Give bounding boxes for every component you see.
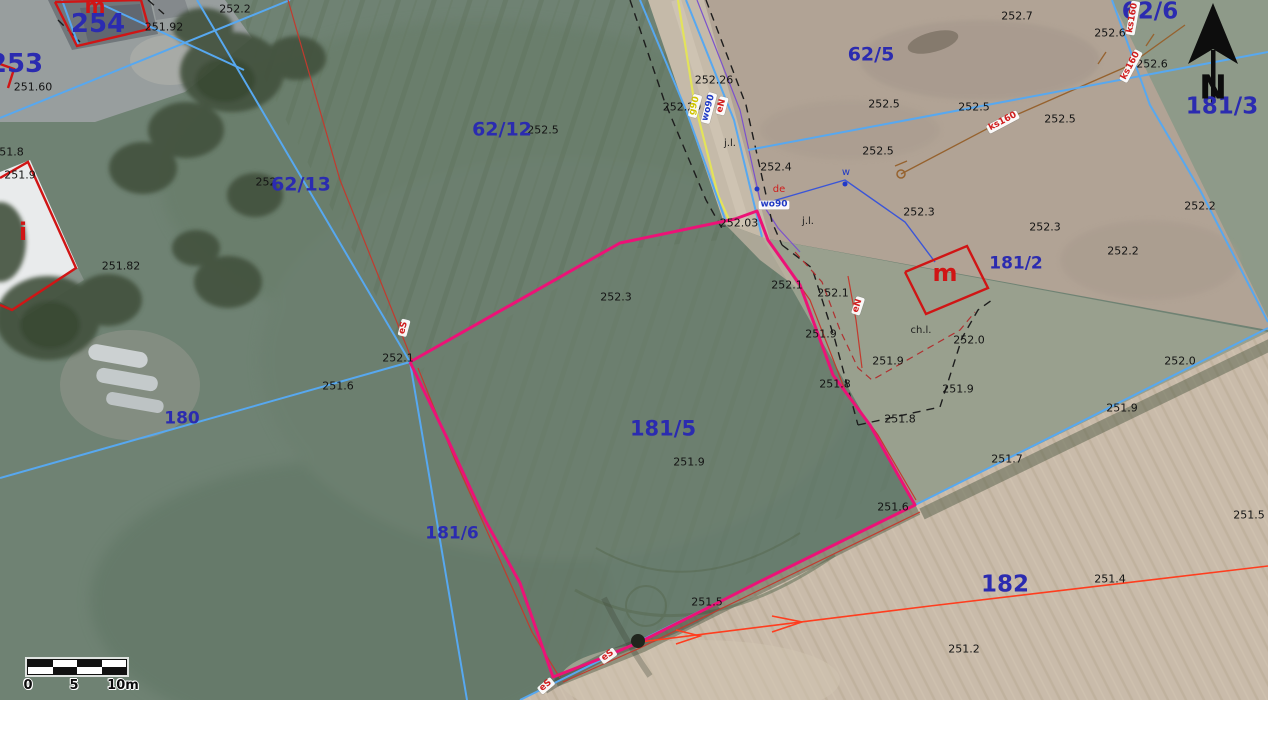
aerial-photo-background bbox=[0, 0, 1268, 700]
parcel-number-label: 181/2 bbox=[989, 256, 1043, 273]
elevation-label: 252.5 bbox=[868, 99, 900, 110]
scale-segment bbox=[102, 667, 127, 674]
scale-segment bbox=[53, 660, 78, 667]
elevation-label: 252.5 bbox=[862, 146, 894, 157]
elevation-label: 251.7 bbox=[991, 454, 1023, 465]
building-letter-label: i bbox=[19, 220, 27, 244]
parcel-number-label: 253 bbox=[0, 51, 43, 77]
elevation-label: 252.3 bbox=[1029, 222, 1061, 233]
elevation-label: 251.8 bbox=[884, 414, 916, 425]
water-node bbox=[843, 182, 848, 187]
elevation-label: 252.26 bbox=[695, 75, 734, 86]
elevation-label: 252.6 bbox=[1136, 59, 1168, 70]
building-letter-label: m bbox=[85, 0, 106, 16]
elevation-label: 252.03 bbox=[720, 218, 759, 229]
elevation-label: 252.6 bbox=[1094, 28, 1126, 39]
elevation-label: 252.0 bbox=[1164, 356, 1196, 367]
parcel-number-label: 62/12 bbox=[472, 121, 532, 140]
elevation-label: 252.5 bbox=[1044, 114, 1076, 125]
elevation-label: 252.5 bbox=[958, 102, 990, 113]
parcel-number-label: 180 bbox=[164, 411, 200, 428]
scale-segment bbox=[28, 667, 53, 674]
north-letter: N bbox=[1199, 68, 1227, 107]
water-node bbox=[755, 187, 760, 192]
elevation-label: 251.9 bbox=[1106, 403, 1138, 414]
scale-segment bbox=[77, 667, 102, 674]
elevation-label: 251.8 bbox=[819, 379, 851, 390]
elevation-label: 252.1 bbox=[817, 288, 849, 299]
elevation-label: 251.6 bbox=[877, 502, 909, 513]
annotation-label: j.l. bbox=[802, 217, 814, 227]
annotation-label: de bbox=[773, 185, 786, 195]
elevation-label: 252.5 bbox=[527, 125, 559, 136]
elevation-label: 251.60 bbox=[14, 82, 53, 93]
elevation-label: 251.6 bbox=[322, 381, 354, 392]
scale-segment bbox=[77, 660, 102, 667]
elevation-label: 252.1 bbox=[382, 353, 414, 364]
parcel-number-label: 181/6 bbox=[425, 526, 479, 543]
elevation-label: 252.0 bbox=[953, 335, 985, 346]
bottom-white-band bbox=[0, 700, 1268, 734]
elevation-label: 252.4 bbox=[760, 162, 792, 173]
elevation-label: 252.2 bbox=[1184, 201, 1216, 212]
elevation-label: 251.5 bbox=[691, 597, 723, 608]
parcel-number-label: 62/13 bbox=[271, 176, 331, 195]
scale-segment bbox=[28, 660, 53, 667]
elevation-label: 251.8 bbox=[0, 147, 24, 158]
scale-segment bbox=[53, 667, 78, 674]
elevation-label: 251.9 bbox=[942, 384, 974, 395]
scale-label-0: 0 bbox=[23, 678, 32, 693]
annotation-label: w bbox=[842, 168, 850, 178]
annotation-label: ch.l. bbox=[911, 326, 932, 336]
map-viewport[interactable]: 252.2251.92251.60251.8251.9251.82252252.… bbox=[0, 0, 1268, 734]
scale-label-10m: 10m bbox=[107, 678, 139, 693]
elevation-label: 251.9 bbox=[4, 170, 36, 181]
aerial-map-canvas bbox=[0, 0, 1268, 700]
scale-bar: 0 5 10m bbox=[27, 659, 127, 675]
elevation-label: 251.5 bbox=[1233, 510, 1265, 521]
elevation-label: 252.3 bbox=[903, 207, 935, 218]
elevation-label: 251.82 bbox=[102, 261, 141, 272]
elevation-label: 252.2 bbox=[219, 4, 251, 15]
elevation-label: 251.2 bbox=[948, 644, 980, 655]
parcel-number-label: 182 bbox=[981, 574, 1029, 597]
elevation-label: 251.92 bbox=[145, 22, 184, 33]
elevation-label: 252.1 bbox=[771, 280, 803, 291]
parcel-number-label: 181/5 bbox=[630, 419, 696, 440]
elevation-label: 252.3 bbox=[600, 292, 632, 303]
elevation-label: 251.9 bbox=[805, 329, 837, 340]
scale-segment bbox=[102, 660, 127, 667]
utility-line-label: wo90 bbox=[758, 201, 789, 210]
annotation-label: j.l. bbox=[724, 139, 736, 149]
elevation-label: 251.4 bbox=[1094, 574, 1126, 585]
building-letter-label: m bbox=[932, 261, 957, 285]
elevation-label: 251.9 bbox=[872, 356, 904, 367]
elevation-label: 251.9 bbox=[673, 457, 705, 468]
parcel-number-label: 62/5 bbox=[848, 46, 895, 65]
elevation-label: 252.7 bbox=[1001, 11, 1033, 22]
elevation-label: 252.2 bbox=[1107, 246, 1139, 257]
bush bbox=[631, 634, 645, 648]
scale-label-5: 5 bbox=[69, 678, 78, 693]
